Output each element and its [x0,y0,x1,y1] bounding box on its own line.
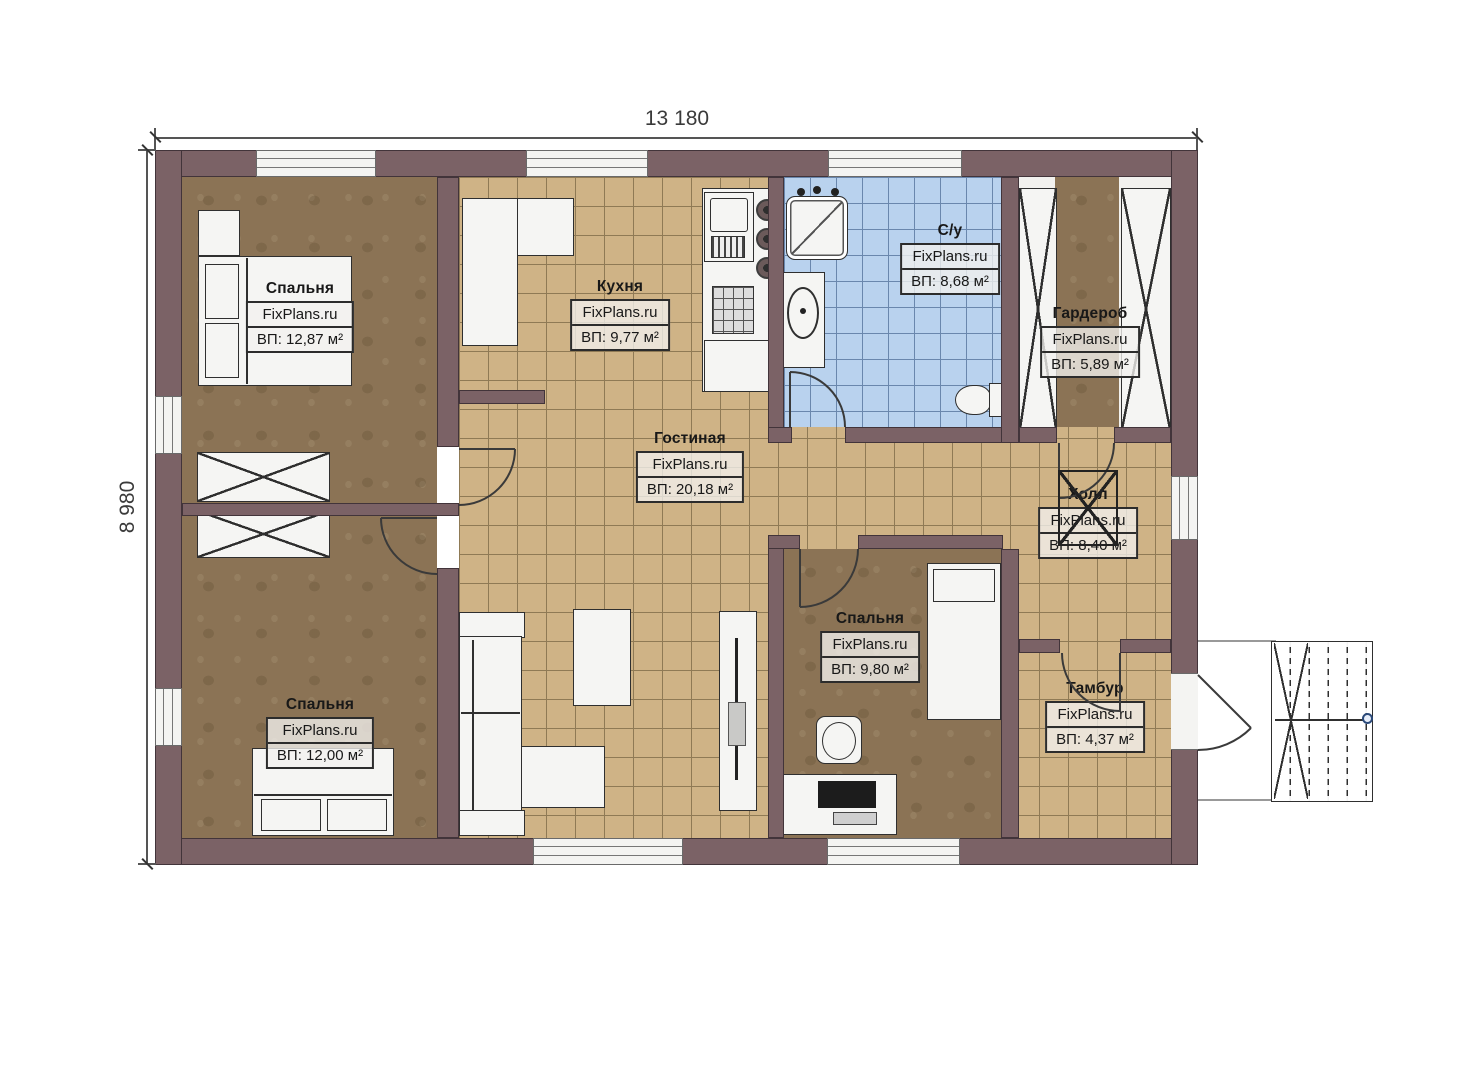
room-label-wardrobe: Гардероб FixPlans.ru ВП: 5,89 м² [1040,305,1140,378]
wall-wardrobe-bottom-a [1019,427,1057,443]
stairs-break-line-2 [1274,643,1308,799]
room-label-bedroom-top-left: Спальня FixPlans.ru ВП: 12,87 м² [246,280,354,353]
faucet [797,188,805,196]
faucet [831,188,839,196]
wall-wardrobe-bottom-b [1114,427,1171,443]
room-label-bathroom: С/у FixPlans.ru ВП: 8,68 м² [900,222,1000,295]
coffee-table [573,609,631,706]
brand-text: FixPlans.ru [822,633,918,656]
room-name: С/у [900,222,1000,240]
brand-text: FixPlans.ru [902,245,998,268]
armchair-seat [822,722,856,760]
kitchen-corner-counter [462,198,518,346]
sofa-cushion-line [461,712,520,714]
window [526,150,648,177]
porch-edge-bottom [1198,799,1276,801]
sofa-back [459,636,522,812]
dimension-line-left [146,150,148,865]
wall-kitchen-stub [459,390,545,404]
window [256,150,376,177]
room-name: Кухня [570,278,670,296]
pillow [205,264,239,319]
wall-exterior-left [155,150,182,865]
window [155,396,182,454]
floor-plan: Спальня FixPlans.ru ВП: 12,87 м² Кухня F… [0,0,1473,1080]
brand-text: FixPlans.ru [1042,328,1138,351]
room-name: Гардероб [1040,305,1140,323]
window [828,150,962,177]
wall-bedrooms-vertical-upper [437,177,459,447]
door-entrance [1198,675,1251,750]
room-name: Спальня [266,696,374,714]
room-label-living-room: Гостиная FixPlans.ru ВП: 20,18 м² [636,430,744,503]
stairs-direction-line [1275,719,1367,721]
wall-hall-vestibule-b [1120,639,1171,653]
window [1171,476,1198,540]
wall-bathroom-bottom-b [845,427,1017,443]
keyboard [833,812,877,825]
pillow [205,323,239,378]
faucet [813,186,821,194]
sofa-armrest [459,612,525,638]
dimension-height-label: 8 980 [116,447,140,567]
window [533,838,683,865]
room-label-bedroom-middle: Спальня FixPlans.ru ВП: 9,80 м² [820,610,920,683]
toilet-bowl [955,385,991,415]
pillow [327,799,387,831]
oven-grid [712,286,754,334]
room-area: ВП: 9,77 м² [572,324,668,349]
wardrobe-cabinet [197,510,330,558]
wall-bedroom-middle-top-a [768,535,800,549]
wall-hall-vestibule-a [1019,639,1060,653]
brand-text: FixPlans.ru [1047,703,1143,726]
wall-bedroom-middle-left [768,535,784,838]
porch-edge-top [1198,640,1276,642]
room-area: ВП: 12,87 м² [248,326,352,351]
room-name: Тамбур [1045,680,1145,698]
window [827,838,960,865]
dimension-line-top [155,137,1198,139]
wardrobe-cabinet [197,452,330,502]
room-label-bedroom-bottom-left: Спальня FixPlans.ru ВП: 12,00 м² [266,696,374,769]
wall-bedroom-middle-top-b [858,535,1003,549]
wall-bathroom-right [1001,177,1019,443]
wall-bathroom-left [768,177,784,440]
dimension-width-label: 13 180 [645,107,709,131]
sofa-armrest [459,810,525,836]
wall-bedroom-divider [182,503,459,516]
room-name: Спальня [820,610,920,628]
monitor [818,781,876,808]
bed-blanket-line [254,794,392,796]
dish-drainer [711,236,745,258]
room-area: ВП: 12,00 м² [268,742,372,767]
floor-wardrobe-strip [1055,177,1119,427]
hall-crossed-box [1058,470,1118,546]
drain [800,308,806,314]
brand-text: FixPlans.ru [248,303,352,326]
room-label-vestibule: Тамбур FixPlans.ru ВП: 4,37 м² [1045,680,1145,753]
room-label-kitchen: Кухня FixPlans.ru ВП: 9,77 м² [570,278,670,351]
wall-bathroom-bottom-a [768,427,792,443]
entrance-door-opening [1171,673,1198,750]
nightstand [198,210,240,256]
room-area: ВП: 8,68 м² [902,268,998,293]
pillow [261,799,321,831]
brand-text: FixPlans.ru [268,719,372,742]
stairs-direction-marker [1362,713,1373,724]
room-name: Спальня [246,280,354,298]
wall-bedrooms-vertical-lower [437,568,459,838]
pillow [933,569,995,602]
room-name: Гостиная [636,430,744,448]
wall-bedroom-middle-right [1001,549,1019,838]
room-area: ВП: 20,18 м² [638,476,742,501]
sofa-corner-seat [521,746,605,808]
room-area: ВП: 5,89 м² [1042,351,1138,376]
tv-bracket [728,702,746,746]
room-area: ВП: 9,80 м² [822,656,918,681]
window [155,688,182,746]
brand-text: FixPlans.ru [638,453,742,476]
sink-basin [710,198,748,232]
room-area: ВП: 4,37 м² [1047,726,1143,751]
shower-tray [786,196,848,260]
sofa-back-line [472,640,474,810]
brand-text: FixPlans.ru [572,301,668,324]
